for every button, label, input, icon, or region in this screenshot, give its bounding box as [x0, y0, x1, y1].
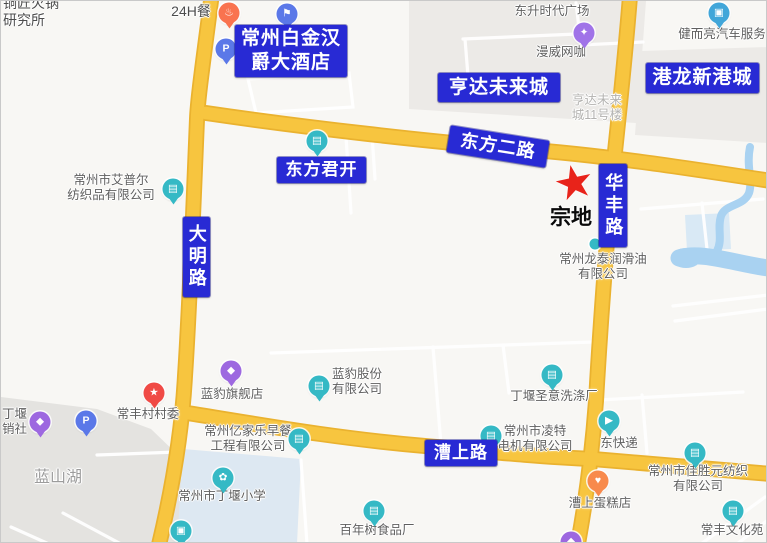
food-marker-24h[interactable]: ♨ [219, 3, 240, 24]
truck-icon: ▶ [605, 416, 613, 427]
bag-icon: ◆ [227, 366, 235, 377]
bag-icon: ◆ [36, 417, 44, 428]
building-icon: ▤ [314, 381, 324, 392]
text-yijiale-zaocan: 常州亿家乐早餐工程有限公司 [204, 424, 292, 454]
building-icon: ▤ [168, 184, 178, 195]
parcel-label: 宗地 [550, 201, 592, 231]
text-24h-can: 24H餐 [171, 3, 211, 20]
company-marker-yijiale[interactable]: ▤ [289, 429, 310, 450]
text-shengyi-xidichang: 丁堰圣意洗涤厂 [510, 389, 598, 404]
label-ganglong-xingangcheng: 港龙新港城 [646, 63, 759, 93]
text-changfeng-cunweihui: 常丰村村委 [117, 407, 180, 422]
building-icon: ▤ [728, 506, 738, 517]
text-hengda-11haolou: 亨达未来城11号楼 [572, 93, 622, 123]
cake-marker[interactable]: ♥ [588, 471, 609, 492]
text-lanbao-qijiandian: 蓝豹旗舰店 [201, 387, 264, 402]
text-yanjiusuo: 铜匠火锅研究所 [3, 0, 59, 28]
car-icon: ▣ [714, 8, 724, 19]
parking-icon: P [82, 416, 89, 427]
bag-icon: ◆ [567, 537, 575, 543]
text-lanbao-gufen: 蓝豹股份有限公司 [332, 367, 382, 397]
building-icon: ▤ [369, 506, 379, 517]
label-hotel-baijinhanjue: 常州白金汉爵大酒店 [235, 25, 347, 77]
text-caoshang-dangaodian: 漕上蛋糕店 [569, 496, 632, 511]
building-icon: ▤ [312, 136, 322, 147]
cake-icon: ♥ [595, 476, 601, 487]
label-hengda-weilaicheng: 亨达未来城 [438, 73, 560, 102]
school-marker-dingyan[interactable]: ✿ [213, 468, 234, 489]
culture-marker-changfeng[interactable]: ▤ [723, 501, 744, 522]
parking-marker-hotel[interactable]: P [216, 39, 237, 60]
text-gongxiaoshe: 丁堰销社 [2, 407, 27, 437]
text-lanshanhu: 蓝山湖 [34, 469, 82, 488]
company-marker-lanbaogufen[interactable]: ▤ [309, 376, 330, 397]
company-marker-aipuer[interactable]: ▤ [163, 179, 184, 200]
text-aipuer: 常州市艾普尔纺织品有限公司 [67, 173, 155, 203]
company-marker-dongfangjunkai[interactable]: ▤ [307, 131, 328, 152]
building-icon: ▤ [294, 434, 304, 445]
parking-marker-left[interactable]: P [76, 411, 97, 432]
game-icon: ✦ [580, 28, 589, 39]
restaurant-icon: ♨ [224, 8, 233, 19]
carwash-marker[interactable]: ▣ [171, 521, 192, 542]
car-service-marker[interactable]: ▣ [709, 3, 730, 24]
star-icon: ★ [149, 388, 158, 399]
building-icon: ▤ [690, 448, 700, 459]
courier-marker-dongkuaidi[interactable]: ▶ [599, 411, 620, 432]
text-jianerliang: 健而亮汽车服务 [678, 27, 766, 42]
text-dongsheng-plaza: 东升时代广场 [514, 4, 589, 19]
building-icon: ▤ [547, 370, 557, 381]
label-caoshang-road: 漕上路 [425, 440, 497, 466]
xingang-block-area [635, 47, 767, 143]
parking-icon: P [222, 44, 229, 55]
committee-marker-cunweihui[interactable]: ★ [144, 383, 165, 404]
company-marker-bainianshu[interactable]: ▤ [364, 501, 385, 522]
text-dongkuaidi: 东快递 [600, 436, 638, 451]
company-marker-xidichang[interactable]: ▤ [542, 365, 563, 386]
hotel-marker[interactable]: ⚑ [277, 4, 298, 25]
school-icon: ✿ [219, 473, 228, 484]
text-lingte-dianji: 常州市凌特电机有限公司 [497, 424, 572, 454]
company-marker-jiasheng[interactable]: ▤ [685, 443, 706, 464]
shop-marker-lanbao[interactable]: ◆ [221, 361, 242, 382]
entertainment-marker-wangka[interactable]: ✦ [574, 23, 595, 44]
label-huafeng-road: 华丰路 [599, 164, 627, 247]
text-longtai-runhuayou: 常州龙泰润滑油有限公司 [559, 252, 647, 282]
car-icon: ▣ [176, 526, 186, 537]
label-dongfang-junkai: 东方君开 [277, 157, 366, 183]
shop-marker-gongxiaoshe[interactable]: ◆ [30, 412, 51, 433]
hotel-flag-icon: ⚑ [282, 9, 291, 20]
label-daming-road: 大明路 [183, 217, 210, 297]
map-canvas[interactable]: ★ 宗地 铜匠火锅研究所24H餐东升时代广场漫威网咖健而亮汽车服务亨达未来城11… [0, 0, 767, 543]
